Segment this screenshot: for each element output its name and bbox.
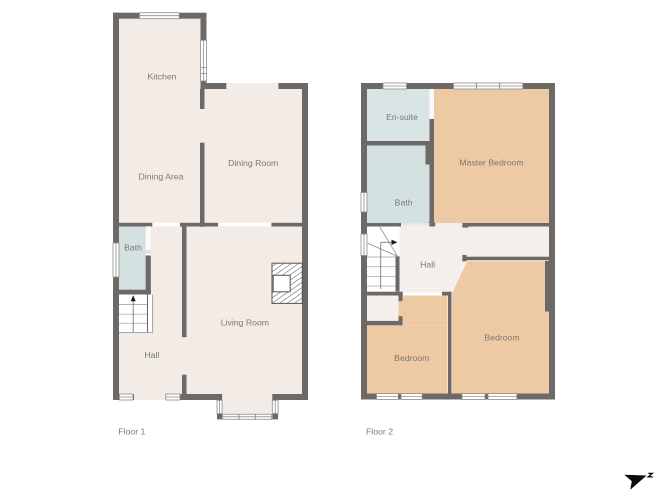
svg-text:Floor 1: Floor 1	[118, 427, 145, 437]
svg-text:Bath: Bath	[395, 198, 413, 208]
svg-text:Living Room: Living Room	[221, 318, 269, 328]
svg-text:Bath: Bath	[124, 242, 142, 252]
svg-text:Master Bedroom: Master Bedroom	[459, 158, 523, 168]
svg-text:Hall: Hall	[145, 350, 160, 360]
svg-text:Floor 2: Floor 2	[366, 427, 393, 437]
svg-text:Kitchen: Kitchen	[148, 72, 177, 82]
svg-text:Dining Room: Dining Room	[228, 158, 278, 168]
svg-text:En-suite: En-suite	[386, 112, 418, 122]
svg-text:Hall: Hall	[420, 259, 435, 269]
svg-text:Bedroom: Bedroom	[394, 353, 429, 363]
svg-text:Dining Area: Dining Area	[139, 172, 184, 182]
svg-text:Bedroom: Bedroom	[484, 332, 519, 342]
